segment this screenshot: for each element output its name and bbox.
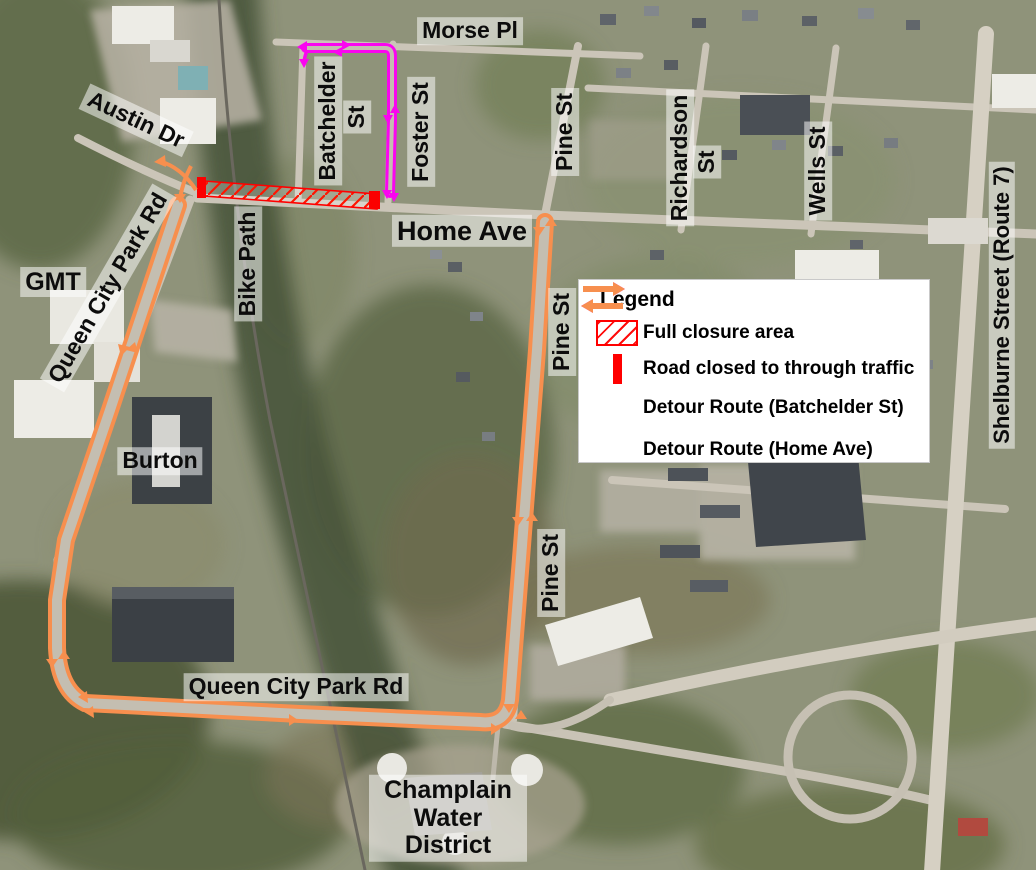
detour-home-arrows-icon <box>579 280 627 314</box>
legend-panel: Legend Full closure area Road closed to … <box>578 279 930 463</box>
label-gmt: GMT <box>20 267 86 297</box>
label-champlain-water-district: Champlain Water District <box>369 775 527 862</box>
legend-row-road-closed: Road closed to through traffic <box>591 354 929 384</box>
label-queen-city-park-rd-bottom: Queen City Park Rd <box>184 673 409 701</box>
legend-row-full-closure: Full closure area <box>591 318 929 348</box>
legend-title: Legend <box>600 288 929 312</box>
label-champlain-line3: District <box>373 832 523 860</box>
label-pine-st-top: Pine St <box>551 88 579 176</box>
legend-label-road-closed: Road closed to through traffic <box>643 358 914 380</box>
label-wells-st: Wells St <box>804 121 832 220</box>
legend-label-detour-home: Detour Route (Home Ave) <box>643 439 873 461</box>
road-closed-swatch-icon <box>613 354 622 384</box>
map-canvas: Morse Pl Batchelder St Foster St Pine St… <box>0 0 1036 870</box>
road-closed-bar-east <box>369 191 380 209</box>
label-richardson: Richardson <box>666 90 694 227</box>
label-burton: Burton <box>117 447 202 475</box>
label-richardson-st-suffix: St <box>693 146 721 179</box>
legend-label-detour-batchelder: Detour Route (Batchelder St) <box>643 397 904 419</box>
full-closure-swatch-icon <box>596 320 638 346</box>
label-champlain-line1: Champlain <box>373 777 523 805</box>
label-pine-st-lower: Pine St <box>537 529 565 617</box>
legend-label-full-closure: Full closure area <box>643 322 794 344</box>
label-morse-pl: Morse Pl <box>417 17 523 45</box>
road-closed-bar-west <box>197 177 206 198</box>
label-foster-st: Foster St <box>407 77 435 187</box>
label-shelburne-street: Shelburne Street (Route 7) <box>989 161 1015 448</box>
label-batchelder: Batchelder <box>314 57 342 186</box>
label-home-ave: Home Ave <box>392 215 532 247</box>
legend-row-detour-home: Detour Route (Home Ave) <box>591 432 929 468</box>
label-batchelder-st-suffix: St <box>343 101 371 134</box>
label-bike-path: Bike Path <box>234 207 262 322</box>
label-pine-st-mid: Pine St <box>548 288 576 376</box>
legend-row-detour-batchelder: Detour Route (Batchelder St) <box>591 390 929 426</box>
label-champlain-line2: Water <box>373 804 523 832</box>
